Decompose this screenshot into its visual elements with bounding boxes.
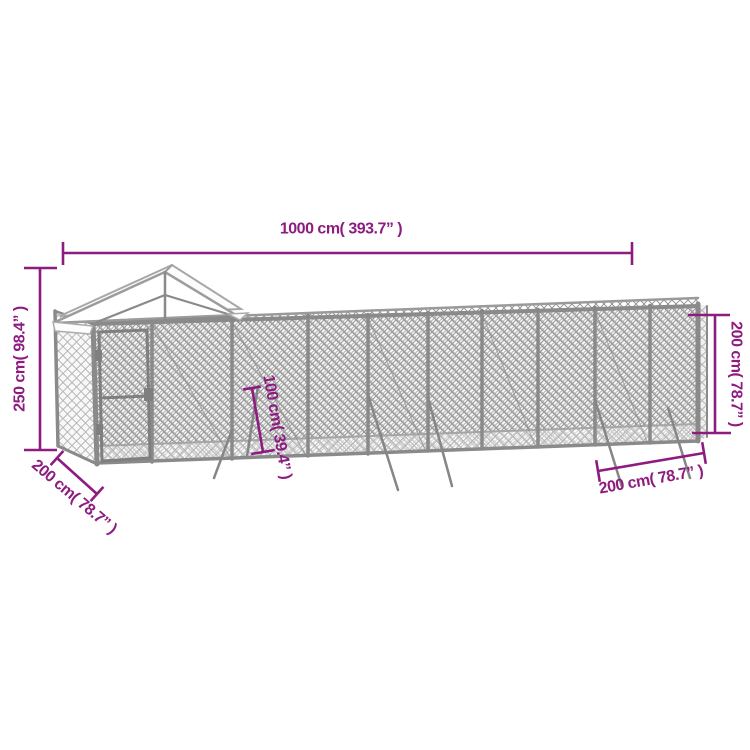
dim-label-height-left: 250 cm( 98.4” ): [12, 306, 29, 412]
hinge-bottom: [96, 424, 103, 435]
kennel-dimension-drawing: 1000 cm( 393.7” ) 250 cm( 98.4” ) 200 cm…: [0, 0, 750, 750]
product-dimension-image: 1000 cm( 393.7” ) 250 cm( 98.4” ) 200 cm…: [0, 0, 750, 750]
dim-line-height-left: [24, 268, 57, 450]
dim-label-depth-front-left: 200 cm( 78.7” ): [28, 457, 120, 538]
dim-line-length-top: [63, 242, 632, 265]
kennel-structure: [53, 265, 707, 490]
door-latch: [144, 388, 153, 401]
dim-label-height-right: 200 cm( 78.7” ): [728, 321, 745, 427]
dim-label-length-top: 1000 cm( 393.7” ): [280, 221, 402, 238]
hinge-top: [95, 350, 102, 361]
